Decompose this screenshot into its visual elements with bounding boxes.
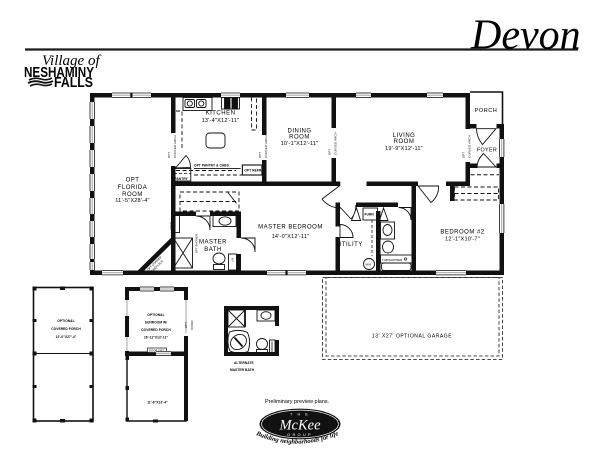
svg-text:FOYER: FOYER [477,148,497,154]
svg-text:13' X27' OPTIONAL GARAGE: 13' X27' OPTIONAL GARAGE [372,334,452,340]
svg-text:FLORIDA: FLORIDA [118,185,148,191]
svg-text:OPT: OPT [167,151,171,158]
svg-text:PORCH: PORCH [475,108,498,114]
svg-text:13'-4"X12'-11": 13'-4"X12'-11" [202,118,240,124]
svg-text:LINEN: LINEN [169,222,173,230]
svg-text:11'-5"X28'-4": 11'-5"X28'-4" [115,198,149,204]
svg-text:FURN: FURN [365,213,375,217]
svg-text:Devon: Devon [470,13,581,59]
svg-text:OPT SHOWER: OPT SHOWER [195,234,199,253]
svg-text:ROOM: ROOM [289,134,310,140]
svg-text:CURVED ARCH: CURVED ARCH [173,135,177,158]
svg-text:CURVED ARCH: CURVED ARCH [468,135,472,158]
svg-text:CURVED ARCH: CURVED ARCH [264,135,268,158]
svg-text:LIN: LIN [232,258,235,262]
svg-text:FALLS: FALLS [54,75,93,91]
svg-text:OPT: OPT [258,151,262,158]
svg-text:W/H: W/H [366,263,371,267]
svg-text:OPT: OPT [462,151,466,158]
svg-text:DOOR: DOOR [190,320,194,330]
svg-text:MASTER BEDROOM: MASTER BEDROOM [258,225,323,231]
svg-text:SUNROOM W/: SUNROOM W/ [145,321,167,325]
svg-text:OPTIONAL: OPTIONAL [57,319,74,323]
svg-text:OPT: OPT [126,178,140,184]
svg-text:10'-1"X12'-11": 10'-1"X12'-11" [281,141,319,147]
svg-text:16'-11"X13'-11": 16'-11"X13'-11" [144,336,169,340]
svg-text:GROUP: GROUP [287,432,313,437]
svg-text:12'-0"X27'-4": 12'-0"X27'-4" [56,335,77,339]
svg-text:PANTRY: PANTRY [175,177,189,181]
svg-text:OPT: OPT [184,322,188,329]
svg-text:OPT REFR: OPT REFR [244,169,262,173]
svg-text:CURVED ARCH: CURVED ARCH [334,132,338,155]
svg-text:BATH: BATH [204,247,222,253]
svg-text:14'-0"X12'-11": 14'-0"X12'-11" [272,234,310,240]
svg-text:MASTER: MASTER [199,240,227,246]
svg-text:UTILITY: UTILITY [337,242,363,248]
svg-text:19'-9"X12'-11": 19'-9"X12'-11" [385,146,423,152]
svg-text:ALTERNATE: ALTERNATE [234,361,254,365]
svg-text:OPTIONAL: OPTIONAL [147,313,164,317]
svg-text:TUB/SHOWER: TUB/SHOWER [382,258,403,262]
svg-text:T H E: T H E [290,413,310,417]
svg-text:KITCHEN: KITCHEN [206,111,236,117]
svg-text:Preliminary preview plans.: Preliminary preview plans. [265,399,330,405]
svg-text:COVERED PORCH: COVERED PORCH [51,327,81,331]
svg-text:OPT PANTRY & CABS: OPT PANTRY & CABS [194,164,229,168]
svg-text:11'-6"X13'-4": 11'-6"X13'-4" [147,401,168,405]
svg-text:COVERED PORCH: COVERED PORCH [141,328,171,332]
svg-text:12'-1"X10'-7": 12'-1"X10'-7" [445,236,480,242]
svg-text:OPT: OPT [328,148,332,155]
svg-text:BEDROOM #2: BEDROOM #2 [440,230,485,236]
svg-text:ROOM: ROOM [394,139,415,145]
svg-text:MASTER BATH: MASTER BATH [230,368,255,372]
